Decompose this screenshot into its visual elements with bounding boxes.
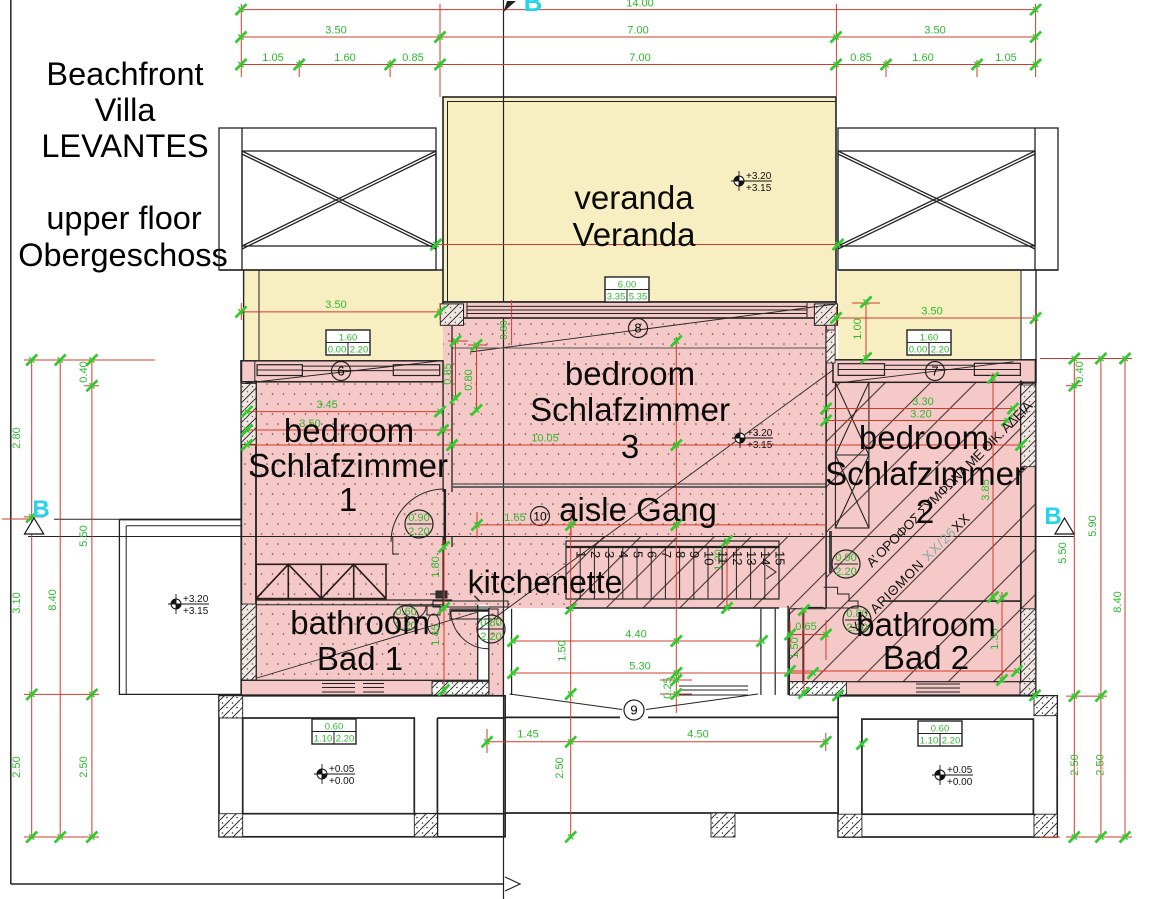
svg-text:2.50: 2.50 (554, 757, 566, 778)
svg-text:Schlafzimmer: Schlafzimmer (825, 455, 1025, 492)
svg-text:3.50: 3.50 (325, 299, 346, 311)
svg-text:2.20: 2.20 (350, 345, 369, 356)
svg-text:2.20: 2.20 (336, 734, 355, 745)
svg-text:veranda: veranda (574, 179, 694, 216)
svg-text:Bad 1: Bad 1 (317, 640, 403, 677)
svg-text:4: 4 (616, 551, 631, 558)
svg-text:7: 7 (931, 364, 938, 379)
svg-text:2.20: 2.20 (408, 526, 429, 538)
svg-text:1.10: 1.10 (314, 734, 333, 745)
svg-text:+3.20: +3.20 (746, 171, 772, 182)
svg-text:3.50: 3.50 (924, 25, 945, 37)
svg-text:13: 13 (744, 551, 759, 565)
svg-text:8: 8 (634, 321, 641, 336)
svg-text:7.00: 7.00 (629, 52, 650, 64)
svg-text:+0.05: +0.05 (947, 765, 973, 776)
svg-text:1.05: 1.05 (262, 52, 283, 64)
svg-text:0.80: 0.80 (499, 320, 510, 340)
svg-text:5.50: 5.50 (78, 525, 90, 546)
svg-text:bedroom: bedroom (284, 412, 414, 449)
svg-text:Villa: Villa (95, 92, 157, 128)
svg-text:1.50: 1.50 (557, 640, 569, 661)
svg-text:1.80: 1.80 (430, 556, 442, 577)
svg-text:5.50: 5.50 (1057, 542, 1069, 563)
svg-text:8.40: 8.40 (1112, 591, 1124, 612)
svg-text:3: 3 (602, 551, 617, 558)
svg-text:2.20: 2.20 (480, 631, 501, 643)
svg-text:0.60: 0.60 (325, 722, 344, 733)
svg-text:2.50: 2.50 (1095, 754, 1107, 775)
svg-text:14.00: 14.00 (626, 0, 654, 10)
svg-text:1.05: 1.05 (995, 52, 1016, 64)
svg-text:6.00: 6.00 (618, 280, 637, 291)
svg-text:6: 6 (645, 551, 660, 558)
svg-text:bedroom: bedroom (859, 419, 989, 456)
svg-text:4.40: 4.40 (625, 629, 646, 641)
svg-text:1.60: 1.60 (334, 52, 355, 64)
svg-text:1.60: 1.60 (912, 52, 933, 64)
svg-text:2: 2 (588, 551, 603, 558)
svg-text:6: 6 (337, 364, 344, 379)
svg-text:B: B (1044, 503, 1061, 530)
svg-text:1: 1 (339, 481, 357, 518)
svg-text:2.50: 2.50 (78, 756, 90, 777)
svg-text:0.90: 0.90 (408, 512, 429, 524)
svg-text:11: 11 (716, 551, 731, 565)
svg-text:0.60: 0.60 (931, 724, 950, 735)
svg-text:0.00: 0.00 (909, 345, 928, 356)
svg-text:2.50: 2.50 (1069, 754, 1081, 775)
svg-text:+3.15: +3.15 (747, 440, 773, 451)
svg-text:8.40: 8.40 (47, 589, 59, 610)
svg-text:9: 9 (687, 551, 702, 558)
svg-text:1: 1 (574, 551, 589, 558)
svg-text:10: 10 (533, 510, 547, 524)
svg-text:Beachfront: Beachfront (46, 56, 203, 92)
svg-text:aisle Gang: aisle Gang (559, 491, 717, 528)
svg-text:3: 3 (621, 428, 639, 465)
svg-text:9: 9 (630, 703, 637, 718)
svg-text:Obergeschoss: Obergeschoss (18, 237, 228, 273)
svg-text:2.80: 2.80 (11, 427, 23, 448)
svg-text:5.30: 5.30 (629, 661, 650, 673)
svg-text:7: 7 (659, 551, 674, 558)
svg-text:0.85: 0.85 (442, 363, 454, 384)
svg-text:2: 2 (916, 493, 934, 530)
svg-text:1.45: 1.45 (430, 624, 442, 645)
svg-text:0.85: 0.85 (850, 52, 871, 64)
svg-text:0.40: 0.40 (78, 361, 90, 382)
svg-text:0.65: 0.65 (795, 621, 816, 633)
svg-text:Veranda: Veranda (573, 216, 697, 253)
svg-text:1.60: 1.60 (920, 333, 939, 344)
svg-text:10: 10 (701, 551, 716, 565)
svg-text:5.90: 5.90 (1087, 515, 1099, 536)
svg-text:5: 5 (630, 551, 645, 558)
svg-text:LEVANTES: LEVANTES (41, 128, 208, 164)
svg-text:Schlafzimmer: Schlafzimmer (530, 391, 730, 428)
svg-text:1.50: 1.50 (789, 637, 801, 658)
svg-text:0.80: 0.80 (463, 369, 475, 390)
svg-text:Schlafzimmer: Schlafzimmer (248, 447, 448, 484)
svg-text:0.80: 0.80 (480, 617, 501, 629)
svg-text:12: 12 (730, 551, 745, 565)
svg-text:2.20: 2.20 (835, 566, 856, 578)
svg-text:3.10: 3.10 (11, 592, 23, 613)
svg-text:2.20: 2.20 (931, 345, 950, 356)
svg-text:3.35: 3.35 (607, 292, 626, 303)
svg-text:1.10: 1.10 (920, 736, 939, 747)
svg-text:+3.15: +3.15 (183, 606, 209, 617)
svg-text:+3.15: +3.15 (746, 183, 772, 194)
svg-text:0.40: 0.40 (1074, 361, 1086, 382)
svg-text:+0.05: +0.05 (329, 764, 355, 775)
svg-text:0.00: 0.00 (328, 345, 347, 356)
svg-text:bathroom: bathroom (856, 606, 995, 643)
svg-text:3.45: 3.45 (316, 399, 337, 411)
svg-text:+0.00: +0.00 (947, 777, 973, 788)
svg-text:14: 14 (758, 551, 773, 565)
svg-text:0.25: 0.25 (662, 677, 674, 698)
svg-text:0.90: 0.90 (835, 552, 856, 564)
svg-text:1.60: 1.60 (339, 333, 358, 344)
svg-text:B: B (524, 0, 543, 17)
svg-text:8: 8 (673, 551, 688, 558)
svg-text:upper floor: upper floor (46, 200, 202, 236)
svg-text:0.85: 0.85 (402, 52, 423, 64)
svg-text:5.35: 5.35 (629, 292, 648, 303)
svg-text:bedroom: bedroom (565, 355, 695, 392)
svg-text:7.00: 7.00 (627, 25, 648, 37)
svg-text:2.20: 2.20 (942, 736, 961, 747)
svg-text:1.65: 1.65 (504, 512, 525, 524)
svg-text:3.30: 3.30 (912, 396, 933, 408)
svg-text:2.50: 2.50 (11, 756, 23, 777)
svg-text:bathroom: bathroom (290, 604, 429, 641)
svg-text:10.05: 10.05 (531, 433, 559, 445)
svg-text:4.50: 4.50 (687, 729, 708, 741)
svg-text:+3.20: +3.20 (747, 428, 773, 439)
svg-text:3.50: 3.50 (325, 25, 346, 37)
svg-text:Bad 2: Bad 2 (883, 639, 969, 676)
svg-text:kitchenette: kitchenette (468, 564, 623, 600)
svg-text:15: 15 (772, 551, 787, 565)
svg-text:1.00: 1.00 (852, 318, 864, 339)
svg-text:3.50: 3.50 (921, 306, 942, 318)
svg-text:+3.20: +3.20 (183, 594, 209, 605)
svg-text:1.45: 1.45 (517, 729, 538, 741)
svg-text:+0.00: +0.00 (329, 776, 355, 787)
